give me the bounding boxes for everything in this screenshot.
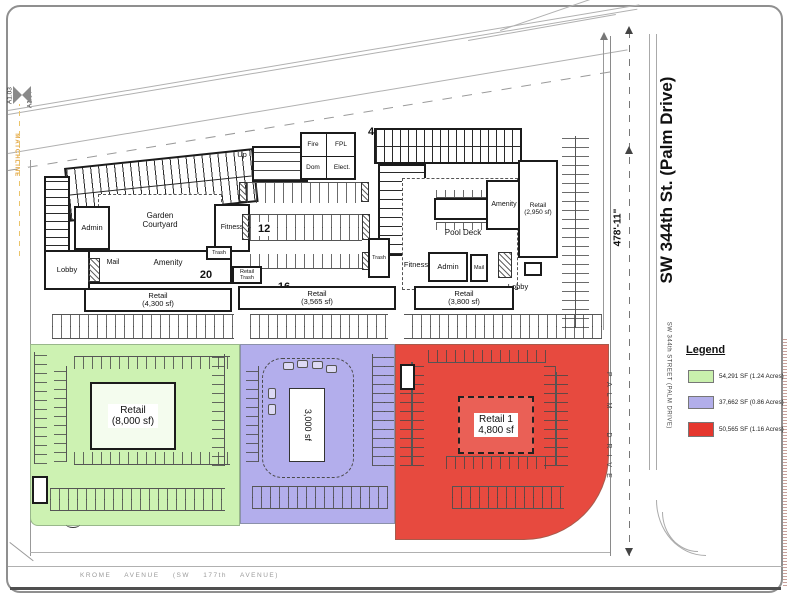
legend-swatch-green — [688, 370, 714, 383]
left-stair-hatch — [88, 258, 100, 282]
legend-label-purple: 37,662 SF (0.86 Acres) — [719, 400, 784, 407]
green-building-line2: (8,000 sf) — [112, 416, 154, 427]
krome-avenue-label: KROME AVENUE (SW 177th AVENUE) — [80, 572, 279, 579]
dom-room-label: Dom — [302, 164, 324, 171]
garage-stall-row — [247, 182, 361, 203]
legend-swatch-purple — [688, 396, 714, 409]
parking-end-hatch — [362, 214, 370, 240]
green-parking-column — [212, 354, 225, 466]
legend-label-green: 54,291 SF (1.24 Acres) — [719, 374, 784, 381]
green-parking-column — [34, 352, 47, 464]
red-trash-enclosure — [400, 364, 415, 390]
red-parking-row — [428, 350, 546, 363]
right-retail-strip: Retail (3,800 sf) — [414, 286, 514, 310]
krome-road-edge-north — [30, 552, 610, 553]
pool — [434, 198, 490, 220]
green-building-line1: Retail — [112, 405, 154, 416]
pool-deck-label: Pool Deck — [428, 229, 498, 238]
garage-end-hatch — [361, 182, 369, 202]
left-amenity-label: Amenity — [138, 259, 198, 268]
car — [268, 388, 276, 399]
east-parking-column — [575, 136, 589, 328]
garden-courtyard-line2: Courtyard — [128, 221, 192, 230]
right-mail-label: Mail — [474, 265, 484, 271]
garden-courtyard-label: Garden Courtyard — [128, 212, 192, 230]
krome-road-line — [8, 566, 783, 567]
utility-divider-h — [300, 156, 356, 157]
driveway-break — [388, 312, 404, 342]
purple-building-label: 3,000 sf — [302, 400, 312, 450]
dimension-label: 478'-11" — [613, 192, 624, 264]
fpl-room-label: FPL — [330, 141, 352, 148]
green-retail-building: Retail (8,000 sf) — [90, 382, 176, 450]
left-unit-count: 20 — [196, 269, 216, 281]
right-retail-east-line1: Retail — [524, 202, 551, 209]
right-amenity-room: Amenity — [486, 180, 522, 230]
car — [268, 404, 276, 415]
matchline-dashed-line — [19, 104, 20, 256]
traffic-arrow-north — [625, 26, 633, 34]
matchline-bowtie-icon — [13, 86, 22, 104]
sheet-bottom-heavy-line — [10, 587, 781, 590]
garage-end-hatch — [239, 182, 247, 202]
right-trash-room: Trash — [368, 238, 390, 278]
palm-road-centerline — [629, 34, 630, 556]
right-retail-line2: (3,800 sf) — [448, 298, 480, 306]
traffic-arrow-south — [625, 548, 633, 556]
red-parking-column — [544, 366, 556, 466]
legend-swatch-red — [688, 422, 714, 437]
palm-road-east-curb-1 — [649, 34, 650, 470]
car — [326, 365, 337, 373]
green-parking-row — [74, 356, 230, 369]
red-parking-row — [452, 497, 564, 509]
retail-trash-room: Retail Trash — [232, 266, 262, 284]
main-parking-row-south — [52, 326, 602, 339]
green-trash-enclosure — [32, 476, 48, 504]
left-trash-room: Trash — [206, 246, 232, 260]
left-mail-label: Mail — [100, 259, 126, 267]
legend: Legend 54,291 SF (1.24 Acres) 37,662 SF … — [680, 340, 786, 450]
right-building-unit-wing — [374, 128, 522, 164]
legend-title: Legend — [686, 344, 725, 356]
green-parking-row — [74, 452, 230, 465]
purple-parking-row — [252, 497, 388, 509]
green-parking-row — [50, 499, 225, 511]
right-mail-room: Mail — [470, 254, 488, 282]
up-ramp-label: Up — [232, 151, 252, 159]
car — [297, 360, 308, 368]
right-admin-label: Admin — [437, 263, 458, 271]
left-trash-label: Trash — [212, 250, 226, 256]
driveway-break — [234, 312, 250, 342]
red-parking-column — [556, 372, 568, 466]
parking-row-center-south — [250, 254, 362, 269]
left-fitness-label: Fitness — [221, 224, 244, 232]
purple-parking-column — [246, 366, 259, 462]
right-trash-label: Trash — [372, 255, 386, 261]
dimension-arrow — [600, 32, 608, 40]
parking-end-hatch — [242, 214, 250, 240]
parking-stall-count: 12 — [254, 222, 274, 236]
center-retail-line2: (3,565 sf) — [301, 298, 333, 306]
elect-room-label: Elect. — [330, 164, 354, 171]
green-zone-flow-arrow — [66, 521, 80, 528]
red-building-line2: 4,800 sf — [478, 425, 514, 436]
left-lobby-block: Lobby — [44, 250, 90, 290]
pool-lounge-row-north — [436, 190, 488, 198]
car — [312, 361, 323, 369]
red-parking-row — [446, 456, 546, 469]
right-stair-hatch — [498, 252, 512, 278]
green-parking-column — [54, 366, 67, 462]
car — [283, 362, 294, 370]
left-retail-strip: Retail (4,300 sf) — [84, 288, 232, 312]
palm-small-street-label: SW 344th STREET (PALM DRIVE) — [665, 263, 672, 487]
right-retail-east-wing: Retail (2,950 sf) — [518, 160, 558, 258]
dimension-line — [603, 38, 604, 330]
retail-trash-line2: Trash — [240, 275, 254, 281]
site-plan-sheet: A1.03 A1.04 MATCHLINE Garden Courtyard A… — [0, 0, 791, 600]
red-retail-building: Retail 1 4,800 sf — [458, 396, 534, 454]
center-retail-strip: Retail (3,565 sf) — [238, 286, 396, 310]
left-lobby-label: Lobby — [57, 266, 77, 274]
traffic-arrow-north — [625, 146, 633, 154]
palm-stacked-street-label: PALM DRIVE — [604, 352, 612, 504]
right-admin-room: Admin — [428, 252, 468, 282]
fire-room-label: Fire — [302, 141, 324, 148]
right-small-room — [524, 262, 542, 276]
red-building-line1: Retail 1 — [478, 414, 514, 425]
left-admin-label: Admin — [81, 224, 102, 232]
left-admin-room: Admin — [74, 206, 110, 250]
left-retail-line2: (4,300 sf) — [142, 300, 174, 308]
right-retail-east-line2: (2,950 sf) — [524, 209, 551, 216]
right-amenity-label: Amenity — [491, 201, 516, 209]
legend-label-red: 50,565 SF (1.16 Acres) — [719, 427, 784, 434]
matchline-bowtie-icon — [22, 86, 31, 104]
purple-parking-column — [384, 354, 394, 466]
east-parking-column — [562, 136, 576, 328]
